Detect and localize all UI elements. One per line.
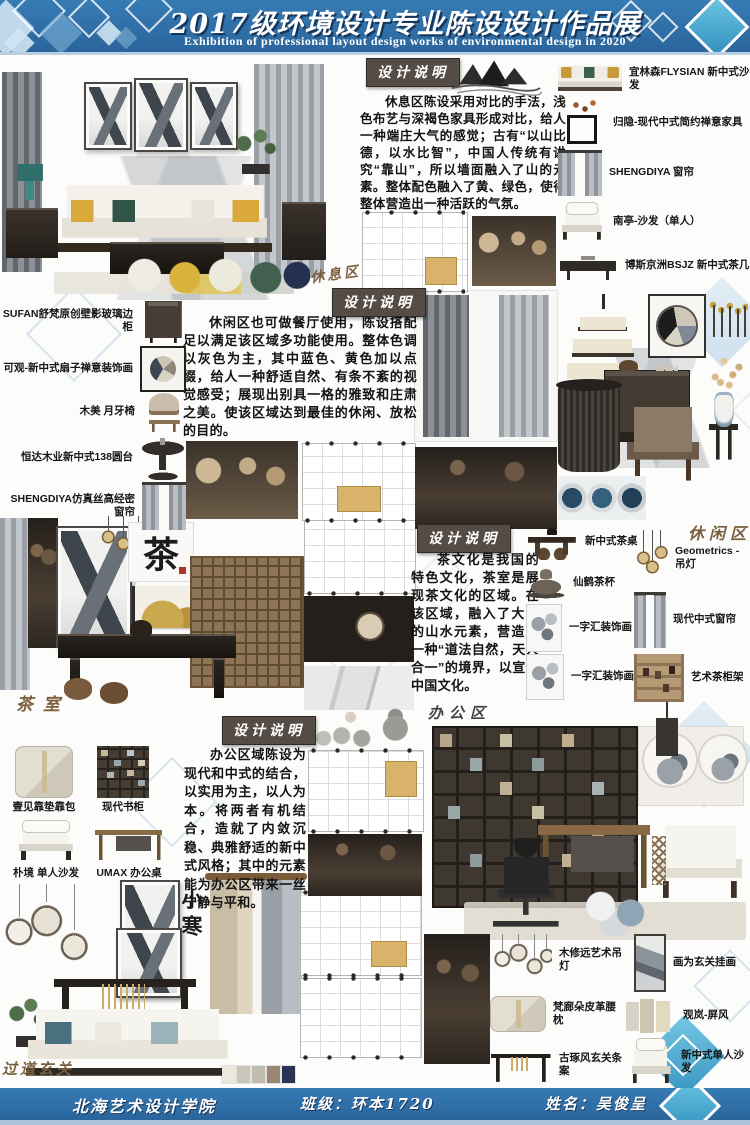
- curtain-drape: [499, 295, 549, 437]
- curtain-thumbnail: [142, 482, 186, 530]
- table-leg: [214, 658, 224, 698]
- gold-cutlery: [710, 294, 748, 344]
- design-note-badge: 设计说明: [332, 288, 426, 317]
- interior-render: [472, 216, 556, 286]
- moon-gate-render: [304, 596, 414, 662]
- entry-hall-render: [424, 934, 490, 1064]
- tea-room-collage: 茶: [0, 516, 302, 712]
- curtain-thumbnail: [558, 150, 602, 196]
- rest-area-collage: [0, 56, 364, 300]
- product-label: 一字汇装饰画: [571, 670, 634, 683]
- wood-lattice-screen: [190, 556, 304, 688]
- product-item: 新中式单人沙发: [628, 1036, 750, 1088]
- curtain-thumbnail: [634, 592, 666, 648]
- office-area-label: 办公区: [428, 702, 491, 723]
- curtain-drape: [423, 295, 469, 437]
- plan-highlight: [425, 257, 457, 285]
- mountain-ink-icon: [450, 56, 542, 98]
- hallway-label: 过道玄关: [2, 1058, 74, 1079]
- product-item: 恒达木业新中式138圆台: [2, 436, 186, 480]
- product-label: 古琢风玄关条案: [559, 1052, 626, 1078]
- pendant-lamp-thumbnail: [634, 530, 668, 586]
- product-item: 归隐-现代中式简约禅意家具: [558, 100, 750, 146]
- armchair-thumbnail: [558, 200, 606, 244]
- leisure-area-label: 休闲区: [688, 520, 750, 544]
- product-label: 新中式单人沙发: [681, 1049, 750, 1075]
- product-item: 壹见靠垫靠包: [6, 746, 82, 814]
- dining-render: [415, 447, 557, 529]
- hallway-plan-column: [298, 888, 492, 1090]
- round-dining-table: [558, 384, 620, 472]
- product-item: 木美 月牙椅: [2, 390, 186, 434]
- product-item: 现代中式窗帘: [634, 592, 750, 648]
- product-label: SHENGDIYA仿真丝高经密窗帘: [2, 493, 135, 519]
- class-info: 班级：环本1720: [300, 1093, 435, 1114]
- cushion-thumbnail: [15, 746, 73, 798]
- palette-swatch: [267, 1066, 280, 1083]
- exhibition-poster: 2017级环境设计专业陈设设计作品展 Exhibition of profess…: [0, 0, 750, 1125]
- floor-plan: [300, 892, 422, 976]
- product-item: 朴境 单人沙发: [4, 818, 88, 880]
- round-fan-art: [700, 736, 746, 782]
- product-item: 艺术茶柜架: [634, 654, 750, 702]
- product-label: SHENGDIYA 窗帘: [609, 166, 694, 179]
- coffee-table-thumbnail: [558, 248, 618, 284]
- product-label: 现代中式窗帘: [673, 613, 736, 626]
- wall-art: [134, 78, 188, 152]
- plan-highlight: [337, 486, 381, 512]
- tall-art-thumbnail: [634, 934, 666, 992]
- desk-thumbnail: [94, 822, 164, 864]
- window-render: [28, 518, 58, 648]
- palette-swatch: [282, 1066, 295, 1083]
- meeting-room-render: [308, 834, 422, 896]
- footer-banner: 北海艺术设计学院 班级：环本1720 姓名：吴俊呈: [0, 1088, 750, 1125]
- leisure-area-collage: [558, 288, 750, 522]
- tea-cup-thumbnail: [526, 566, 566, 600]
- page-subtitle: Exhibition of professional layout design…: [150, 34, 660, 49]
- side-table-thumbnail: [558, 100, 606, 146]
- tea-stool: [100, 682, 128, 704]
- palette-swatch: [237, 1066, 250, 1083]
- sofa-thumbnail: [558, 62, 622, 96]
- mountain-painting: [89, 87, 127, 145]
- office-chair: [486, 838, 566, 932]
- palette-swatch: [222, 1066, 235, 1083]
- product-label: SUFAN舒梵原创壁影玻璃边柜: [2, 308, 133, 334]
- school-name: 北海艺术设计学院: [72, 1093, 216, 1117]
- product-label: 壹见靠垫靠包: [6, 801, 82, 814]
- bookcase-thumbnail: [97, 746, 149, 798]
- cabinet-thumbnail: [140, 296, 186, 346]
- product-item: 古琢风玄关条案: [490, 1044, 626, 1086]
- design-note-text: 休息区陈设采用对比的手法，浅色布艺与深褐色家具形成对比，给人一种端庄大气的感觉；…: [360, 94, 566, 213]
- floor-plan: [304, 518, 416, 594]
- product-label: 博斯京洲BSJZ 新中式茶几: [625, 259, 749, 272]
- student-name: 姓名：吴俊呈: [545, 1093, 647, 1114]
- product-label: 观岚-屏风: [683, 1009, 729, 1022]
- tea-character: 茶: [143, 526, 179, 578]
- tea-table: [58, 634, 236, 658]
- solar-term-calligraphy: 小寒: [176, 888, 206, 960]
- product-label: 仙鹤茶杯: [573, 576, 615, 589]
- product-label: 可观-新中式扇子禅意装饰画: [4, 362, 134, 375]
- armchair-thumbnail: [628, 1036, 674, 1088]
- floor-plan: [300, 978, 422, 1058]
- pendant-lantern: [652, 702, 682, 766]
- product-item: 博斯京洲BSJZ 新中式茶几: [558, 248, 750, 284]
- product-item: 画为玄关挂画: [634, 934, 750, 992]
- tea-calligraphy-art: 茶: [128, 522, 194, 582]
- tea-room-label: 茶室: [16, 690, 70, 715]
- ring-pendant-ornaments: [0, 884, 106, 976]
- curtain-drape: [0, 518, 30, 690]
- design-note-text: 茶文化是我国的特色文化，茶室是展现茶文化的区域。在该区域，融入了大量的山水元素，…: [411, 551, 539, 695]
- plan-highlight: [385, 761, 417, 797]
- product-item: 可观-新中式扇子禅意装饰画: [2, 346, 186, 392]
- header-banner: 2017级环境设计专业陈设设计作品展 Exhibition of profess…: [0, 0, 750, 55]
- product-label: 南亭-沙发（单人）: [613, 215, 701, 228]
- floor-plan: [302, 443, 416, 521]
- armchair-thumbnail: [14, 818, 78, 864]
- cushion-row: [126, 250, 310, 296]
- design-note-badge: 设计说明: [366, 58, 460, 87]
- product-label: 一字汇装饰画: [569, 621, 632, 634]
- ink-painting-thumbnail: [526, 654, 564, 700]
- product-item: SHENGDIYA仿真丝高经密窗帘: [2, 482, 186, 530]
- pillow-thumbnail: [490, 996, 546, 1032]
- product-label: 朴境 单人沙发: [4, 867, 88, 880]
- product-item: UMAX 办公桌: [90, 822, 168, 880]
- wall-clock-art: [648, 294, 706, 358]
- product-item: 宜林森FLYSIAN 新中式沙发: [558, 62, 750, 96]
- round-table-thumbnail: [140, 436, 186, 480]
- side-table: [6, 208, 58, 258]
- cushion-stack: [576, 888, 664, 936]
- ring-pendant-thumbnail: [490, 934, 552, 986]
- shelf-rack-thumbnail: [634, 654, 684, 702]
- product-label: 艺术茶柜架: [691, 671, 744, 684]
- ink-painting-thumbnail: [526, 604, 562, 652]
- product-item: 现代书柜: [88, 746, 158, 814]
- floor-plan: [362, 212, 468, 292]
- floor-plan: [308, 750, 424, 832]
- mosaic-diamond-cyan: [659, 1088, 721, 1125]
- bonsai-plant: [224, 126, 290, 176]
- product-label: 新中式茶桌: [585, 535, 638, 548]
- guest-armchair: [652, 812, 748, 906]
- product-label: 梵廊朵皮革腰枕: [553, 1001, 626, 1027]
- curtain-photo: [415, 291, 557, 441]
- product-label: UMAX 办公桌: [90, 867, 168, 880]
- tea-mid-column: [302, 516, 416, 712]
- chair-thumbnail: [142, 390, 186, 434]
- tea-table-thumbnail: [526, 524, 578, 560]
- product-label: 木修远艺术吊灯: [559, 947, 626, 973]
- fan-art-thumbnail: [140, 346, 186, 392]
- ceramic-plates: [558, 476, 646, 520]
- product-item: SUFAN舒梵原创壁影玻璃边柜: [2, 296, 186, 346]
- design-note-badge: 设计说明: [222, 716, 316, 745]
- product-item: 梵廊朵皮革腰枕: [490, 996, 626, 1032]
- product-item: 南亭-沙发（单人）: [558, 200, 750, 244]
- product-label: 归隐-现代中式简约禅意家具: [613, 116, 743, 129]
- product-item: 观岚-屏风: [622, 996, 750, 1036]
- design-note-badge: 设计说明: [417, 524, 511, 553]
- screens-thumbnail: [622, 996, 676, 1036]
- teapot: [130, 620, 152, 636]
- palette-swatch: [252, 1066, 265, 1083]
- wall-art: [84, 82, 132, 150]
- product-label: Geometrics - 吊灯: [675, 545, 750, 571]
- mosaic-diamond-cyan: [684, 0, 749, 55]
- console-thumbnail: [490, 1044, 552, 1086]
- product-label: 恒达木业新中式138圆台: [21, 451, 133, 464]
- product-label: 现代书柜: [88, 801, 158, 814]
- design-note-text: 休闲区也可做餐厅使用，陈设搭配足以满足该区域多功能使用。整体色调以灰色为主，其中…: [183, 314, 417, 440]
- zen-still-life: [308, 704, 420, 748]
- product-label: 画为玄关挂画: [673, 956, 736, 969]
- product-label: 宜林森FLYSIAN 新中式沙发: [629, 66, 750, 92]
- product-item: 木修远艺术吊灯: [490, 934, 626, 986]
- product-item: SHENGDIYA 窗帘: [558, 150, 750, 196]
- table-lamp: [12, 160, 48, 208]
- plan-highlight: [371, 941, 407, 967]
- mountain-painting: [139, 83, 183, 147]
- restaurant-render: [186, 441, 298, 519]
- product-label: 木美 月牙椅: [80, 405, 135, 418]
